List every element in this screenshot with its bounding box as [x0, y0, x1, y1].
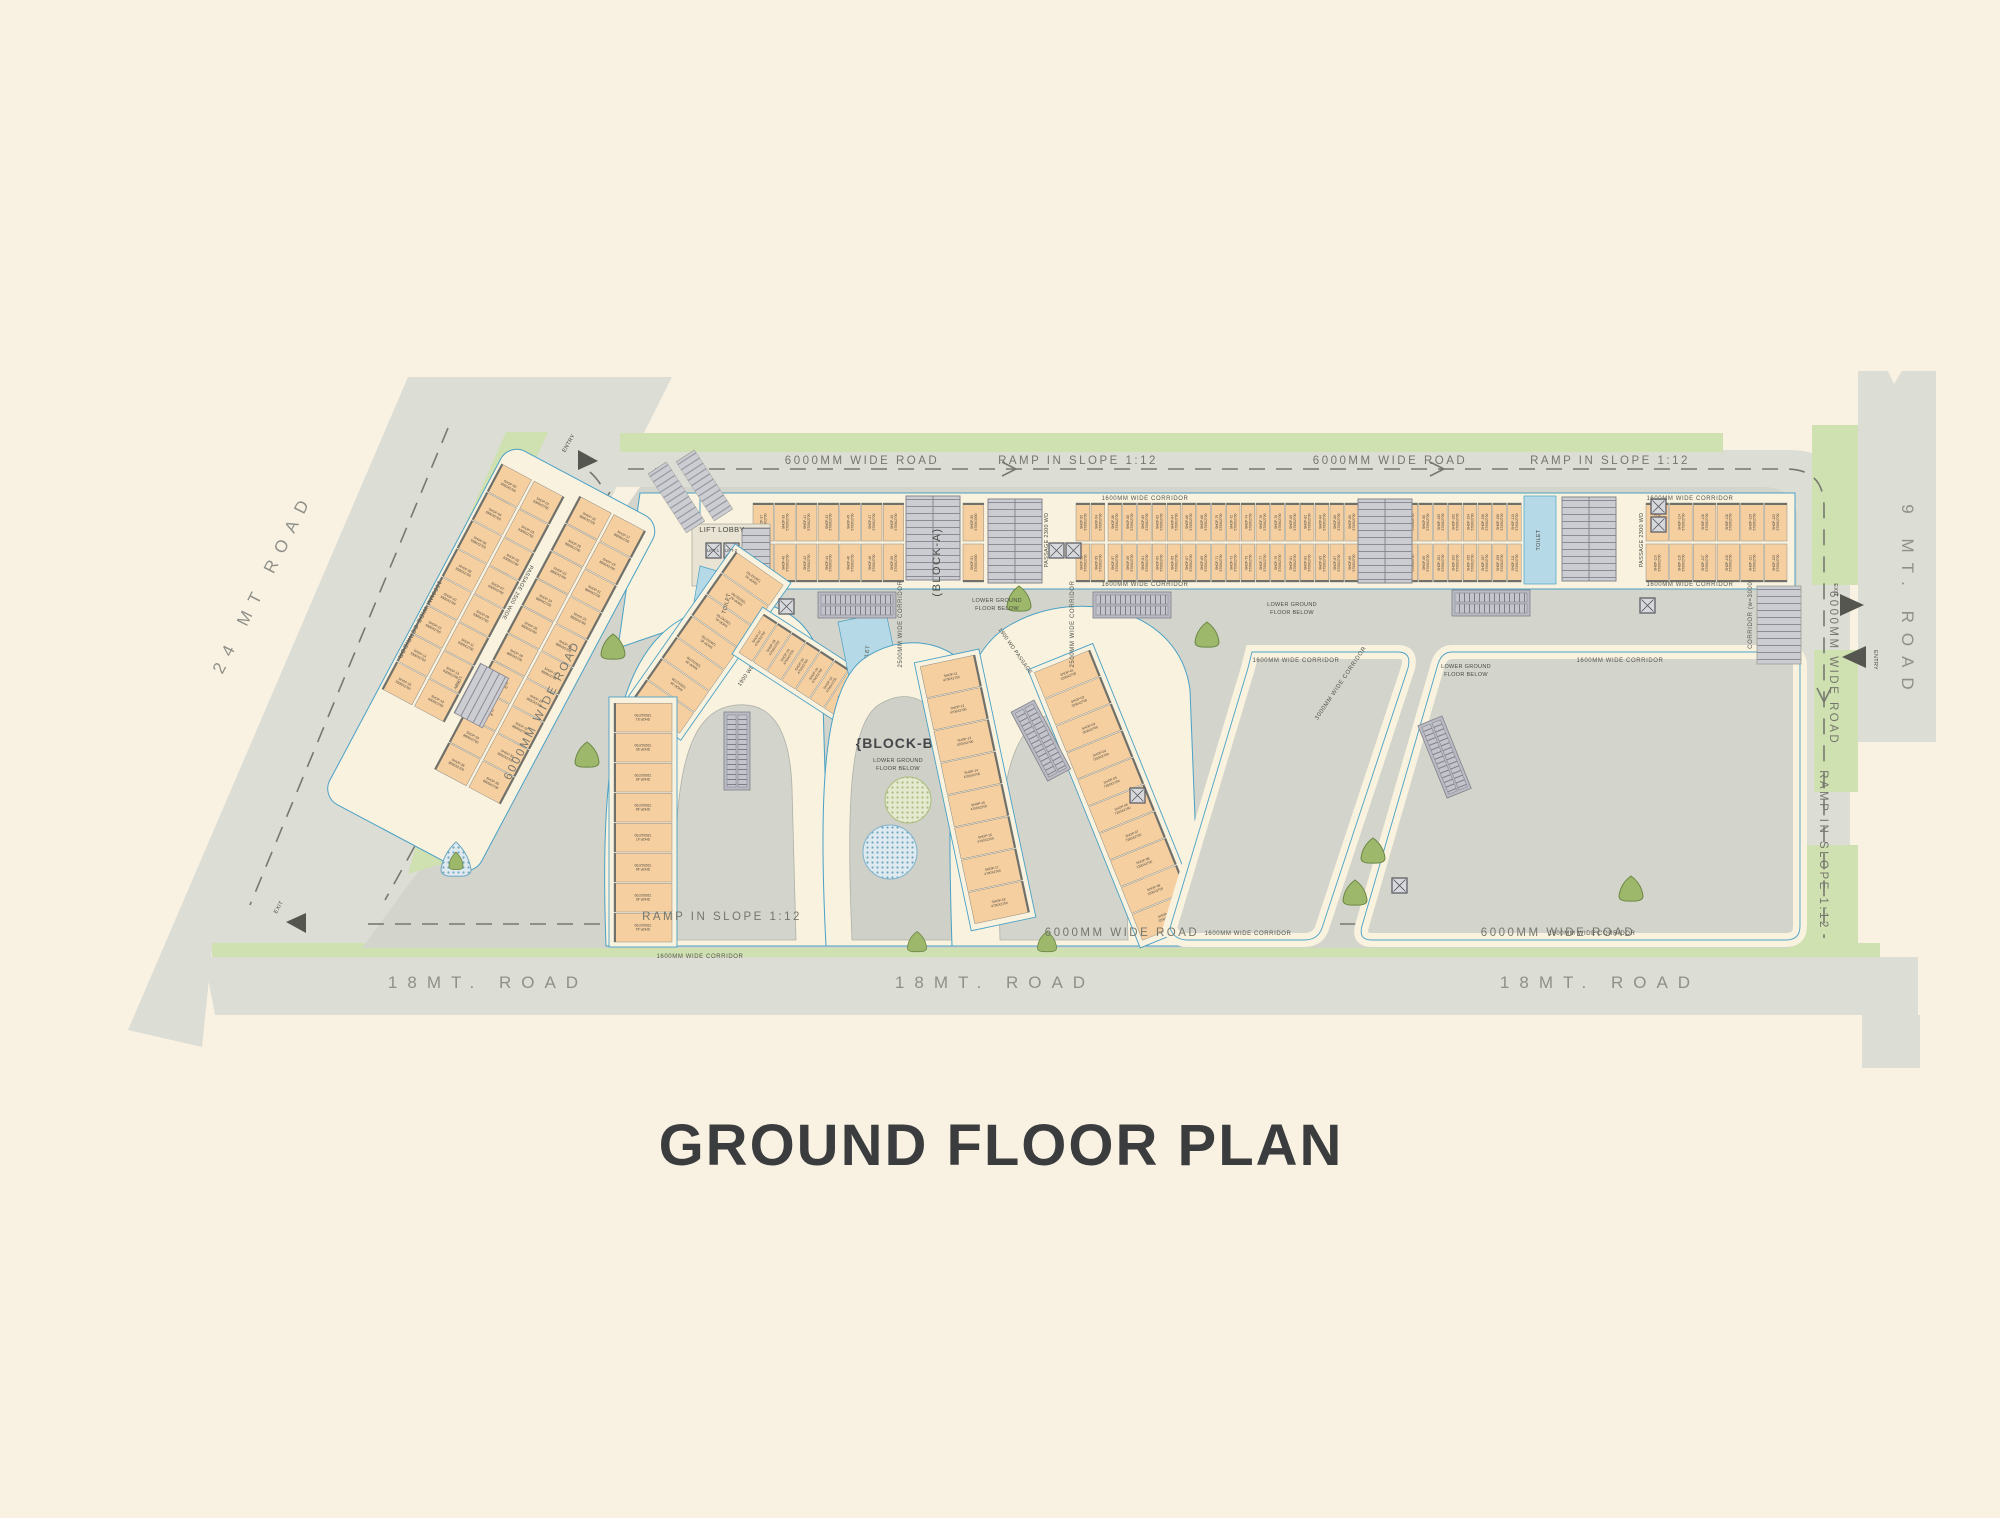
- page-title: GROUND FLOOR PLAN: [659, 1113, 1344, 1178]
- shop-label: SHOP-655700X2700: [1170, 554, 1178, 571]
- shop-label: SHOP-495700X2700: [890, 513, 898, 530]
- shop-wall: [1315, 503, 1329, 505]
- shop-label: SHOP-755700X2700: [1244, 554, 1252, 571]
- road-9mt-label: 9 MT. ROAD: [1898, 504, 1917, 699]
- corridor-1600-2: 1600MM WIDE CORRIDOR: [1101, 582, 1188, 588]
- shop-label: SHOP-815700X2700: [1289, 554, 1297, 571]
- shop-wall: [1152, 503, 1166, 505]
- shop-wall: [1286, 503, 1300, 505]
- shop-label: SHOP-565700X2700: [1111, 513, 1119, 530]
- svg-text:FLOOR BELOW: FLOOR BELOW: [1444, 672, 1488, 678]
- corridor-2500-2: 2500MM WIDE CORRIDOR: [1070, 580, 1076, 667]
- shop-label: SHOP-1205700X2700: [1748, 513, 1756, 530]
- exit-crossing: [1757, 586, 1801, 664]
- shop-wall: [796, 503, 817, 505]
- shop-wall: [614, 883, 616, 912]
- exit-label-e: EXIT: [1832, 583, 1838, 597]
- corridor-2500-1: 2500MM WIDE CORRIDOR: [898, 580, 904, 667]
- shop-label: SHOP-805700X2700: [1289, 513, 1297, 530]
- shop-wall: [840, 580, 861, 582]
- shop-wall: [818, 580, 839, 582]
- shop-wall: [1448, 503, 1462, 505]
- shop-label: SHOP-465700X2700: [846, 554, 854, 571]
- shop-wall: [1226, 503, 1240, 505]
- shop-label: SHOP-1155700X2700: [1677, 554, 1685, 571]
- entry-label-e: ENTRY: [1872, 650, 1878, 670]
- shop-wall: [1478, 503, 1492, 505]
- shop-label: SHOP-435700X2700: [825, 513, 833, 530]
- svg-text:FLOOR BELOW: FLOOR BELOW: [975, 606, 1019, 612]
- shop-wall: [775, 503, 796, 505]
- corridor-1600-3: 1600MM WIDE CORRIDOR: [1646, 496, 1733, 502]
- shop-label: SHOP-1065700X2700: [1481, 513, 1489, 530]
- corridor-3000-label: CORRIDOR (w=3000): [1748, 579, 1754, 649]
- blockB-floor-below-1: FLOOR BELOW: [876, 766, 920, 772]
- blockB-lower-ground-1: LOWER GROUND: [873, 758, 923, 764]
- shop-wall: [1271, 503, 1285, 505]
- shop-label: SHOP-605700X2700: [1141, 513, 1149, 530]
- shop-wall: [1463, 503, 1477, 505]
- shop-label: SHOP-555700X2700: [1094, 554, 1102, 571]
- shop-label: SHOP-775700X2700: [1259, 554, 1267, 571]
- shop-label: SHOP-395700X2700: [781, 513, 789, 530]
- ground-floor-plan-page: SHOP-375700X2700SHOP-385700X2700SHOP-395…: [0, 0, 2000, 1518]
- blockA-stair-3: [1358, 499, 1412, 583]
- shop-wall: [1271, 580, 1285, 582]
- shop-wall: [1493, 503, 1507, 505]
- shop-wall: [1197, 503, 1211, 505]
- shop-label: SHOP-635700X2700: [1156, 554, 1164, 571]
- corridor-1600-7: 1600MM WIDE CORRIDOR: [1576, 658, 1663, 664]
- road-6000-label-1: 6000MM WIDE ROAD: [785, 455, 939, 467]
- block-b-label: {BLOCK-B}: [856, 735, 940, 751]
- svg-text:FLOOR BELOW: FLOOR BELOW: [1270, 610, 1314, 616]
- shop-wall: [614, 733, 616, 762]
- shop-wall: [862, 580, 883, 582]
- shop-label: SHOP-825700X2700: [1304, 513, 1312, 530]
- shop-wall: [1693, 503, 1716, 505]
- lift-3: [1049, 543, 1064, 558]
- shop-label: SHOP-855700X2700: [1318, 554, 1326, 571]
- shop-wall: [1493, 580, 1507, 582]
- shop-label: SHOP-1145700X2700: [1677, 513, 1685, 530]
- shop-label: SHOP-595700X2700: [1126, 554, 1134, 571]
- escalator-1: [818, 592, 896, 618]
- shop-label: SHOP-785700X2700: [1274, 513, 1282, 530]
- ramp-label-1: RAMP IN SLOPE 1:12: [998, 455, 1158, 467]
- shop-wall: [818, 503, 839, 505]
- shop-label: SHOP-735700X2700: [1230, 554, 1238, 571]
- escalator-2: [1093, 592, 1171, 618]
- shop-label: SHOP-705700X2700: [1215, 513, 1223, 530]
- shop-wall: [1182, 503, 1196, 505]
- shop-label: SHOP-507200X2700: [634, 743, 651, 751]
- green-strip-north: [620, 433, 1723, 452]
- shop-label: SHOP-445700X2700: [825, 554, 833, 571]
- shop-wall: [1670, 503, 1693, 505]
- escalator-3: [1452, 590, 1530, 616]
- shop-label: SHOP-475700X2700: [868, 513, 876, 530]
- shop-label: SHOP-1115700X2700: [1511, 554, 1519, 571]
- shop-label: SHOP-795700X2700: [1274, 554, 1282, 571]
- corridor-1600-6: 1600MM WIDE CORRIDOR: [1204, 931, 1291, 937]
- shop-label: SHOP-457200X2700: [634, 893, 651, 901]
- corridor-1600-5: 1600MM WIDE CORRIDOR: [1252, 658, 1339, 664]
- shop-label: SHOP-695700X2700: [1200, 554, 1208, 571]
- corridor-1600-8: 1600MM WIDE CORRIDOR: [1548, 931, 1635, 937]
- shop-wall: [1212, 503, 1226, 505]
- lift-road-2: [1640, 598, 1655, 613]
- shop-label: SHOP-515700X3000: [970, 554, 978, 571]
- road-18mt-label-2: 18MT. ROAD: [895, 973, 1095, 992]
- shop-label: SHOP-1185700X2700: [1725, 513, 1733, 530]
- courtyard-pond: [863, 825, 917, 879]
- shop-wall: [1167, 503, 1181, 505]
- shop-label: SHOP-1055700X2700: [1466, 554, 1474, 571]
- shop-wall: [963, 580, 984, 582]
- shop-wall: [1197, 580, 1211, 582]
- shop-label: SHOP-1235700X2700: [1772, 554, 1780, 571]
- blockA-stair-2: [988, 499, 1042, 583]
- shop-wall: [614, 823, 616, 852]
- shop-label: SHOP-1215700X2700: [1748, 554, 1756, 571]
- shop-label: SHOP-497200X2700: [634, 773, 651, 781]
- lift-6: [1651, 517, 1666, 532]
- shop-label: SHOP-477200X2700: [634, 833, 651, 841]
- shop-wall: [1076, 503, 1090, 505]
- shop-wall: [1345, 580, 1359, 582]
- shop-wall: [1241, 503, 1255, 505]
- lift-1-label: LIFT-1: [707, 548, 720, 553]
- shop-label: SHOP-1225700X2700: [1772, 513, 1780, 530]
- blockA-stair-4: [1562, 497, 1616, 581]
- shop-wall: [1345, 503, 1359, 505]
- shop-wall: [1300, 503, 1314, 505]
- shop-label: SHOP-875700X2700: [1333, 554, 1341, 571]
- shop-wall: [796, 580, 817, 582]
- svg-text:LOWER GROUND: LOWER GROUND: [1441, 664, 1491, 670]
- shop-wall: [1226, 580, 1240, 582]
- shop-label: SHOP-1165700X2700: [1701, 513, 1709, 530]
- shop-label: SHOP-1075700X2700: [1481, 554, 1489, 571]
- shop-wall: [1741, 503, 1764, 505]
- shop-label: SHOP-1085700X2700: [1496, 513, 1504, 530]
- shop-wall: [1091, 503, 1105, 505]
- shop-wall: [1108, 503, 1122, 505]
- shop-wall: [753, 503, 774, 505]
- lift-4: [1066, 543, 1081, 558]
- shop-label: SHOP-525700X2700: [1079, 513, 1087, 530]
- svg-text:LOWER GROUND: LOWER GROUND: [972, 598, 1022, 604]
- shop-label: SHOP-1045700X2700: [1466, 513, 1474, 530]
- passage-2300-label-1: PASSAGE 2300 WD: [1044, 513, 1050, 568]
- shop-label: SHOP-575700X2700: [1111, 554, 1119, 571]
- shop-label: SHOP-1035700X2700: [1452, 554, 1460, 571]
- shop-label: SHOP-995700X2700: [1422, 554, 1430, 571]
- shop-label: SHOP-1095700X2700: [1496, 554, 1504, 571]
- shop-wall: [840, 503, 861, 505]
- shop-wall: [1419, 580, 1433, 582]
- shop-wall: [1123, 503, 1137, 505]
- shop-label: SHOP-615700X2700: [1141, 554, 1149, 571]
- courtyard-green-circle: [885, 777, 931, 823]
- site-plan-drawing: SHOP-375700X2700SHOP-385700X2700SHOP-395…: [0, 0, 2000, 1518]
- shop-wall: [1508, 580, 1522, 582]
- shop-label: SHOP-467200X2700: [634, 863, 651, 871]
- ramp-label-3: RAMP IN SLOPE 1:12: [642, 911, 802, 923]
- shop-wall: [1717, 503, 1740, 505]
- shop-wall: [614, 853, 616, 882]
- shop-wall: [883, 503, 904, 505]
- road-6000-label-3: 6000MM WIDE ROAD: [1045, 927, 1199, 939]
- shop-label: SHOP-1015700X2700: [1437, 554, 1445, 571]
- shop-wall: [1434, 503, 1448, 505]
- shop-label: SHOP-1175700X2700: [1701, 554, 1709, 571]
- shop-wall: [1765, 580, 1788, 582]
- shop-wall: [1448, 580, 1462, 582]
- shop-label: SHOP-1195700X2700: [1725, 554, 1733, 571]
- shop-label: SHOP-505700X2700: [890, 554, 898, 571]
- shop-wall: [1076, 580, 1090, 582]
- ramp-label-east: RAMP IN SLOPE 1:12: [1817, 770, 1829, 930]
- shop-wall: [1286, 580, 1300, 582]
- shop-wall: [614, 793, 616, 822]
- shop-wall: [1478, 580, 1492, 582]
- shop-label: SHOP-455700X2700: [846, 513, 854, 530]
- shop-label: SHOP-885700X2700: [1348, 513, 1356, 530]
- lift-lobby-label: LIFT LOBBY: [699, 525, 744, 534]
- shops-archL-limb: SHOP-447200X2700SHOP-457200X2700SHOP-467…: [609, 697, 677, 947]
- shop-wall: [862, 503, 883, 505]
- shop-label: SHOP-745700X2700: [1244, 513, 1252, 530]
- shop-wall: [1212, 580, 1226, 582]
- shop-label: SHOP-1135700X2700: [1654, 554, 1662, 571]
- shop-wall: [1508, 503, 1522, 505]
- corridor-1600-1: 1600MM WIDE CORRIDOR: [1101, 496, 1188, 502]
- svg-text:LOWER GROUND: LOWER GROUND: [1267, 602, 1317, 608]
- shop-label: SHOP-725700X2700: [1230, 513, 1238, 530]
- shop-wall: [1300, 580, 1314, 582]
- lift-road-1: [779, 599, 794, 614]
- shop-wall: [614, 763, 616, 792]
- shop-wall: [1330, 503, 1344, 505]
- shop-label: SHOP-405700X2700: [781, 554, 789, 571]
- shop-wall: [1434, 580, 1448, 582]
- shop-label: SHOP-1025700X2700: [1452, 513, 1460, 530]
- road-18mt-label-3: 18MT. ROAD: [1500, 973, 1700, 992]
- shop-label: SHOP-625700X2700: [1156, 513, 1164, 530]
- shop-wall: [1419, 503, 1433, 505]
- void-b-corridor: [1361, 652, 1800, 940]
- green-strip-east-1: [1812, 425, 1858, 585]
- shop-label: SHOP-715700X2700: [1215, 554, 1223, 571]
- shop-label: SHOP-447200X2700: [634, 923, 651, 931]
- road-18mt-stub: [1862, 1015, 1920, 1068]
- lift-2-label: LIFT-2: [725, 548, 738, 553]
- shop-label: SHOP-485700X2700: [868, 554, 876, 571]
- shop-label: SHOP-845700X2700: [1318, 513, 1326, 530]
- shop-label: SHOP-835700X2700: [1304, 554, 1312, 571]
- shop-label: SHOP-517200X2700: [634, 713, 651, 721]
- toilet-blockA-label: TOILET: [1536, 529, 1542, 550]
- shop-label: SHOP-415700X2700: [803, 513, 811, 530]
- shop-wall: [1765, 503, 1788, 505]
- shop-label: SHOP-985700X2700: [1422, 513, 1430, 530]
- shop-wall: [1138, 503, 1152, 505]
- road-6000-label-2: 6000MM WIDE ROAD: [1313, 455, 1467, 467]
- shop-label: SHOP-645700X2700: [1170, 513, 1178, 530]
- shop-wall: [614, 913, 616, 942]
- road-18mt-label-1: 18MT. ROAD: [388, 973, 588, 992]
- shop-wall: [1463, 580, 1477, 582]
- shop-label: SHOP-487200X2700: [634, 803, 651, 811]
- road-6000-label-east: 6000MM WIDE ROAD: [1827, 591, 1839, 745]
- corridor-1600-9: 1600MM WIDE CORRIDOR: [656, 954, 743, 960]
- shop-label: SHOP-425700X2700: [803, 554, 811, 571]
- shop-wall: [1241, 580, 1255, 582]
- lift-road-3: [1392, 878, 1407, 893]
- shop-wall: [1256, 580, 1270, 582]
- shop-wall: [963, 503, 984, 505]
- block-a-label: (BLOCK-A): [931, 527, 943, 596]
- shop-label: SHOP-545700X2700: [1094, 513, 1102, 530]
- shop-label: SHOP-765700X2700: [1259, 513, 1267, 530]
- shop-wall: [1256, 503, 1270, 505]
- shop-label: SHOP-1005700X2700: [1437, 513, 1445, 530]
- shop-label: SHOP-585700X2700: [1126, 513, 1134, 530]
- archL-escalator: [724, 712, 750, 790]
- shop-label: SHOP-865700X2700: [1333, 513, 1341, 530]
- shop-label: SHOP-1105700X2700: [1511, 513, 1519, 530]
- shop-label: SHOP-675700X2700: [1185, 554, 1193, 571]
- corridor-1600-4: 1600MM WIDE CORRIDOR: [1646, 582, 1733, 588]
- shop-label: SHOP-895700X2700: [1348, 554, 1356, 571]
- ramp-label-2: RAMP IN SLOPE 1:12: [1530, 455, 1690, 467]
- shop-label: SHOP-505700X3000: [970, 513, 978, 530]
- shop-wall: [614, 703, 616, 732]
- lift-7: [1130, 788, 1145, 803]
- passage-2300-label-2: PASSAGE 2300 WD: [1639, 513, 1645, 568]
- shop-label: SHOP-665700X2700: [1185, 513, 1193, 530]
- road-9mt: [1858, 371, 1936, 742]
- shop-label: SHOP-685700X2700: [1200, 513, 1208, 530]
- shop-wall: [1330, 580, 1344, 582]
- shop-wall: [1315, 580, 1329, 582]
